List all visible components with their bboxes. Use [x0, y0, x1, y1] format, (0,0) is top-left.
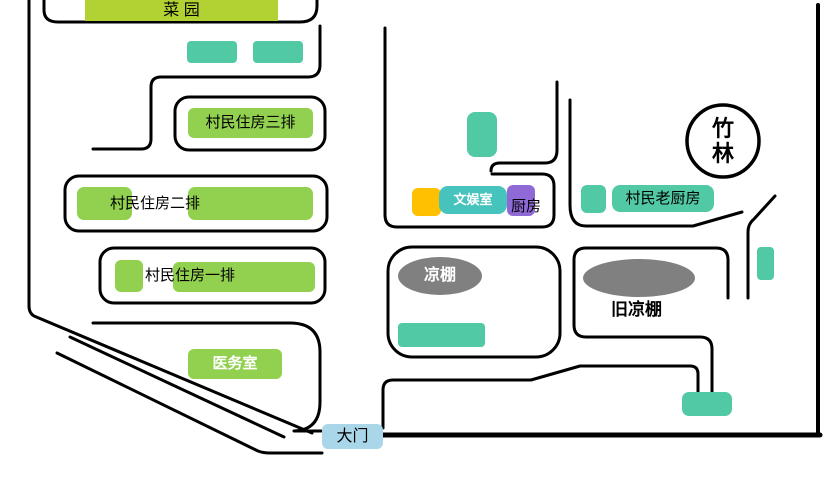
housing-row3-label: 村民住房三排	[205, 114, 295, 132]
old-shade-shed-ellipse	[583, 259, 695, 297]
housing-row2-large-block	[188, 187, 313, 220]
shed-block-top-left	[187, 41, 237, 63]
housing-row2-label: 村民住房二排	[110, 195, 200, 213]
old-kitchen-label: 村民老厨房	[625, 190, 700, 208]
shade-shed-teal-block	[398, 323, 485, 347]
clinic-block: 医务室	[188, 349, 282, 379]
storage-yellow-block	[412, 188, 441, 216]
shade-shed-ellipse: 凉棚	[398, 257, 482, 295]
housing-row1-label: 村民住房一排	[145, 267, 235, 285]
shed-block-top-right	[253, 41, 303, 63]
recreation-room-label: 文娱室	[453, 192, 492, 208]
mid-teal-block	[467, 112, 497, 157]
recreation-room-block: 文娱室	[439, 186, 507, 214]
village-map: 菜 园 村民住房三排 村民住房二排 村民住房一排 医务室 大门 文娱室 厨房 村…	[0, 0, 829, 496]
rear-teal-block	[682, 392, 732, 416]
gate-rear-road-line	[383, 366, 698, 428]
shade-shed-label: 凉棚	[424, 266, 456, 285]
old-kitchen-block: 村民老厨房	[612, 185, 714, 212]
bamboo-grove-label: 竹 林	[687, 107, 759, 175]
bamboo-line2: 林	[712, 141, 734, 166]
housing-row3-block: 村民住房三排	[188, 108, 313, 138]
gate-block: 大门	[322, 424, 383, 449]
gate-label: 大门	[336, 427, 368, 446]
kitchen-label: 厨房	[511, 198, 541, 216]
bamboo-line1: 竹	[712, 116, 734, 141]
roads-layer	[0, 0, 829, 496]
clinic-label: 医务室	[212, 355, 257, 373]
vegetable-garden-block: 菜 园	[85, 0, 278, 21]
vegetable-garden-label: 菜 园	[163, 1, 199, 20]
old-kitchen-square-block	[581, 185, 606, 213]
housing-row1-small-block	[115, 260, 143, 292]
right-small-teal-block	[757, 247, 774, 280]
upper-hook-line	[491, 82, 557, 171]
old-shade-shed-label: 旧凉棚	[611, 300, 662, 320]
